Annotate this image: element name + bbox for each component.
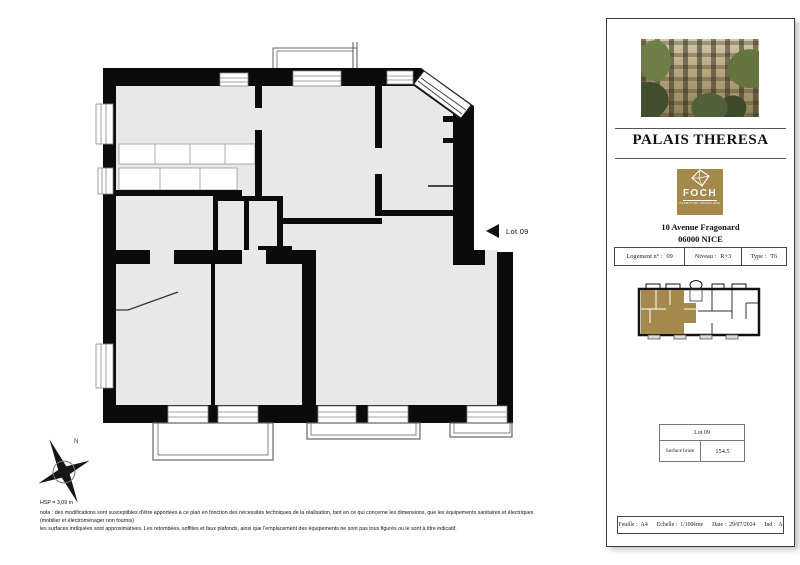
building-photo bbox=[641, 39, 759, 117]
logo-tagline: PROMOTION IMMOBILIÈRE bbox=[680, 202, 721, 205]
feuille-label: Feuille : bbox=[619, 522, 638, 528]
type-label: Type : bbox=[750, 253, 766, 260]
address-line-1: 10 Avenue Fragonard bbox=[607, 222, 794, 234]
arrow-left-icon bbox=[486, 224, 499, 238]
plan-sheet: Lot 09 N HSP = 3,09 m nota : des modific… bbox=[0, 0, 800, 565]
north-label: N bbox=[74, 439, 78, 445]
divider bbox=[615, 158, 786, 159]
type-value: T6 bbox=[770, 253, 777, 260]
logement-label: Logement n° : bbox=[626, 253, 662, 260]
niveau-label: Niveau : bbox=[695, 253, 717, 260]
nota-line-2: les surfaces indiquées sont approximativ… bbox=[40, 526, 545, 534]
feuille-pair: Feuille : A4 bbox=[619, 522, 648, 528]
sheet-footer: Feuille : A4 Echelle : 1/100ème Date : 2… bbox=[617, 516, 784, 534]
type-cell: Type : T6 bbox=[742, 248, 786, 265]
date-pair: Date : 29/07/2024 bbox=[712, 522, 755, 528]
niveau-value: R+3 bbox=[720, 253, 731, 260]
feuille-value: A4 bbox=[641, 522, 648, 528]
key-plan-thumbnail bbox=[636, 279, 764, 345]
hsp-note: HSP = 3,09 m bbox=[40, 500, 545, 508]
diamond-icon bbox=[688, 169, 712, 187]
lot-pointer: Lot 09 bbox=[486, 224, 529, 238]
echelle-pair: Echelle : 1/100ème bbox=[657, 522, 703, 528]
address-line-2: 06000 NICE bbox=[607, 234, 794, 246]
north-arrow-icon: N bbox=[30, 432, 98, 508]
logo-name: FOCH bbox=[683, 188, 717, 199]
surface-value: 154.5 bbox=[701, 441, 744, 461]
ind-value: A bbox=[778, 522, 782, 528]
lot-table-header: Lot 09 bbox=[660, 425, 744, 441]
nota-line-1: nota : des modifications sont susceptibl… bbox=[40, 510, 545, 526]
echelle-value: 1/100ème bbox=[680, 522, 703, 528]
residence-title: PALAIS THERESA bbox=[607, 132, 794, 149]
date-value: 29/07/2024 bbox=[729, 522, 755, 528]
niveau-cell: Niveau : R+3 bbox=[685, 248, 741, 265]
lot-surface-table: Lot 09 Surface brute 154.5 bbox=[659, 424, 745, 462]
logement-value: 09 bbox=[667, 253, 673, 260]
title-block-panel: PALAIS THERESA FOCH PROMOTION IMMOBILIÈR… bbox=[606, 18, 795, 547]
foch-logo: FOCH PROMOTION IMMOBILIÈRE bbox=[677, 169, 723, 215]
lot-label: Lot 09 bbox=[506, 227, 529, 236]
unit-info-table: Logement n° : 09 Niveau : R+3 Type : T6 bbox=[614, 247, 787, 266]
address: 10 Avenue Fragonard 06000 NICE bbox=[607, 222, 794, 246]
date-label: Date : bbox=[712, 522, 726, 528]
echelle-label: Echelle : bbox=[657, 522, 677, 528]
plan-notes: HSP = 3,09 m nota : des modifications so… bbox=[40, 500, 545, 534]
bottom-balconies bbox=[153, 423, 512, 460]
logement-cell: Logement n° : 09 bbox=[615, 248, 685, 265]
ind-label: Ind : bbox=[765, 522, 776, 528]
ind-pair: Ind : A bbox=[765, 522, 783, 528]
divider bbox=[615, 128, 786, 129]
surface-label: Surface brute bbox=[660, 441, 701, 461]
logo-separator bbox=[683, 200, 717, 201]
